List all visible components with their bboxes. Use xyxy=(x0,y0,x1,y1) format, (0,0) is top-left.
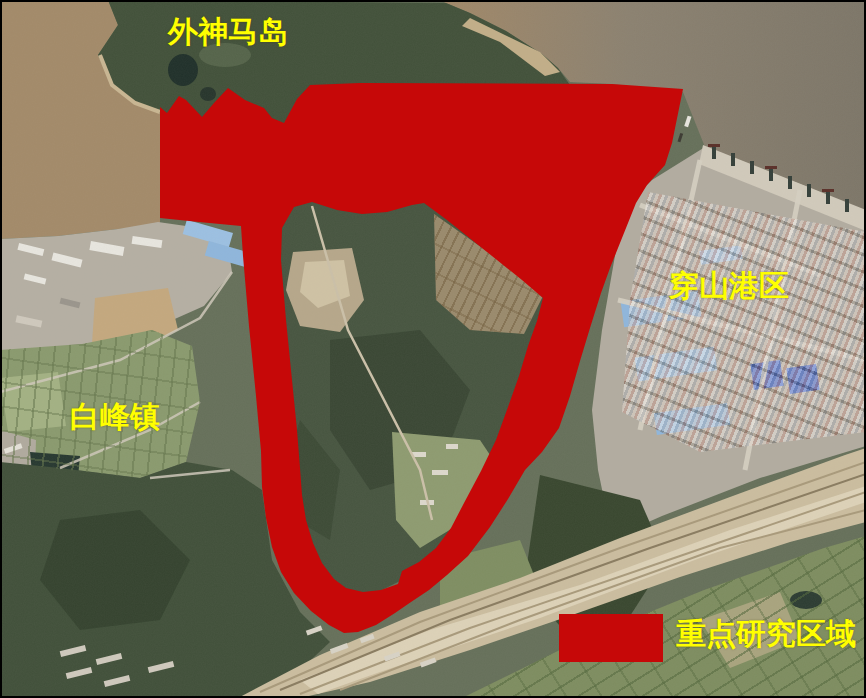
satellite-figure: 外神马岛 穿山港区 白峰镇 重点研究区域 xyxy=(0,0,866,698)
legend xyxy=(559,614,663,662)
study-area-overlay xyxy=(160,83,683,633)
study-area-layer xyxy=(0,0,866,698)
legend-swatch xyxy=(559,614,663,662)
